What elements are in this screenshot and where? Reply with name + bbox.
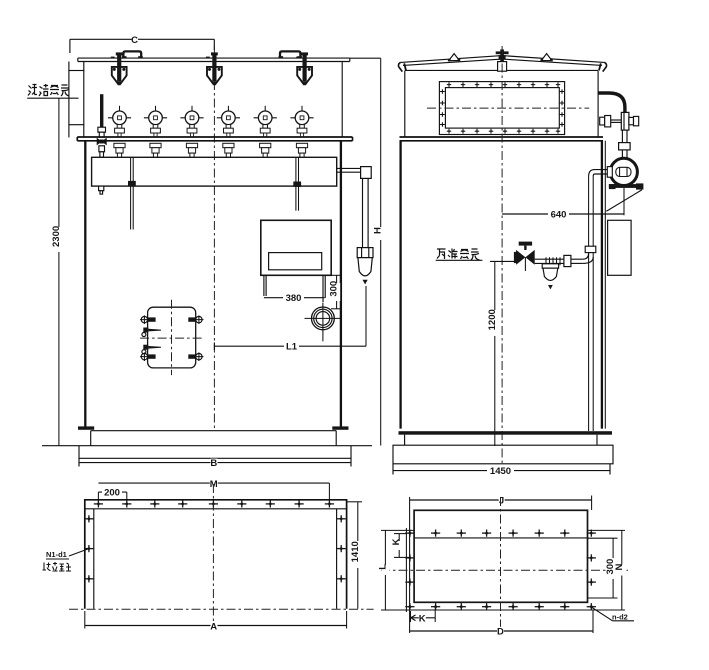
svg-text:A: A — [210, 621, 217, 632]
svg-text:1450: 1450 — [490, 466, 511, 477]
svg-text:K: K — [419, 614, 426, 625]
svg-text:2300: 2300 — [51, 226, 62, 247]
svg-text:J: J — [499, 496, 504, 507]
svg-text:L1: L1 — [286, 342, 298, 353]
svg-text:N1-d1: N1-d1 — [46, 550, 67, 559]
svg-text:640: 640 — [551, 210, 567, 221]
svg-text:N: N — [614, 564, 625, 571]
svg-text:L: L — [377, 564, 388, 570]
svg-text:1410: 1410 — [350, 541, 361, 562]
svg-text:300: 300 — [328, 281, 339, 297]
svg-text:n-d2: n-d2 — [612, 613, 628, 622]
svg-text:380: 380 — [286, 293, 302, 304]
svg-text:K: K — [391, 538, 402, 545]
svg-text:D: D — [497, 627, 504, 638]
svg-text:H: H — [373, 227, 384, 234]
svg-text:C: C — [131, 35, 138, 46]
svg-text:200: 200 — [104, 488, 120, 499]
svg-text:1200: 1200 — [487, 309, 498, 330]
svg-text:B: B — [210, 458, 217, 469]
